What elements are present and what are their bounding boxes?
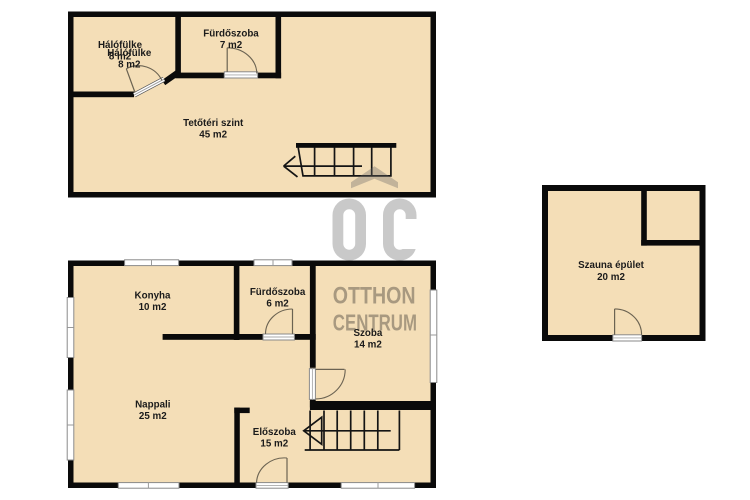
svg-text:25 m2: 25 m2: [139, 411, 167, 422]
svg-text:Nappali: Nappali: [135, 400, 171, 411]
svg-text:Hálófülke: Hálófülke: [107, 48, 152, 59]
svg-text:15 m2: 15 m2: [260, 439, 288, 450]
svg-text:CENTRUM: CENTRUM: [333, 310, 417, 336]
svg-text:6 m2: 6 m2: [266, 298, 289, 309]
svg-text:Előszoba: Előszoba: [253, 427, 297, 438]
svg-text:Konyha: Konyha: [135, 291, 171, 302]
svg-text:Fürdőszoba: Fürdőszoba: [203, 28, 259, 39]
svg-text:14 m2: 14 m2: [354, 340, 382, 351]
svg-text:Tetőtéri szint: Tetőtéri szint: [183, 118, 244, 129]
svg-text:20 m2: 20 m2: [597, 272, 625, 283]
svg-text:7 m2: 7 m2: [220, 40, 243, 51]
svg-text:45 m2: 45 m2: [199, 129, 227, 140]
svg-text:OTTHON: OTTHON: [333, 283, 416, 310]
svg-text:10 m2: 10 m2: [139, 302, 167, 313]
svg-text:Szauna épület: Szauna épület: [578, 260, 645, 271]
svg-text:Fürdőszoba: Fürdőszoba: [250, 287, 306, 298]
svg-text:8 m2: 8 m2: [118, 59, 141, 70]
